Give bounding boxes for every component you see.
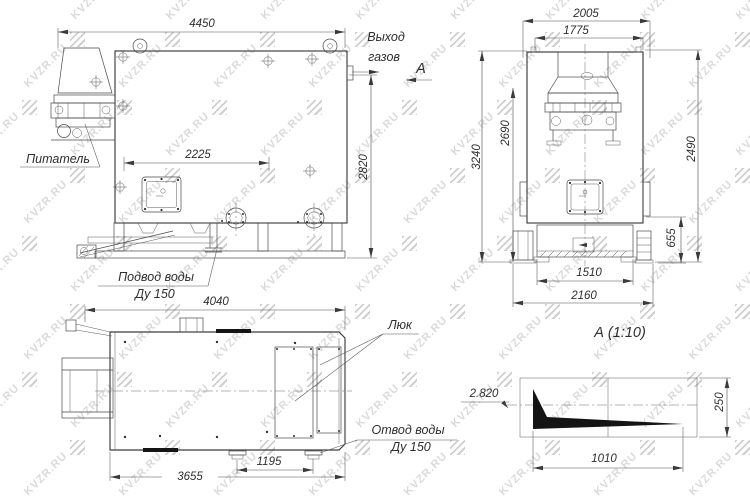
dim-detail-height: 250: [714, 392, 726, 411]
label-gas-outlet-1: Выход: [367, 30, 405, 44]
label-hatch: Люк: [388, 318, 412, 332]
dim-front-base-span-inner: 1510: [576, 267, 602, 279]
label-section-mark: А: [416, 61, 426, 77]
dim-top-body-length: 3655: [177, 471, 203, 483]
dim-front-body-width: 1775: [563, 25, 589, 37]
dim-top-nozzle-span: 1195: [257, 456, 282, 468]
label-gas-outlet-2: газов: [368, 50, 400, 64]
label-water-outlet-2: Ду 150: [391, 440, 431, 454]
dim-top-overall-length: 4040: [203, 296, 229, 308]
dim-detail-level: 2.820: [470, 388, 499, 400]
dim-side-height: 2820: [358, 154, 370, 180]
drawing-canvas: KVZR.RUKVZR.RUKVZR.RUKVZR.RUKVZR.RUKVZR.…: [0, 0, 750, 500]
detail-title: А (1:10): [594, 325, 646, 341]
dim-front-right-height: 2490: [686, 136, 698, 162]
dim-front-base-height: 655: [666, 228, 678, 247]
label-water-outlet-1: Отвод воды: [371, 423, 444, 437]
dim-front-top-width: 2005: [573, 8, 599, 20]
label-water-inlet-2: Ду 150: [135, 287, 175, 301]
dim-front-overall-height: 3240: [471, 144, 483, 170]
dim-side-hatch-span: 2225: [185, 149, 211, 161]
label-water-inlet-1: Подвод воды: [118, 270, 194, 284]
dim-front-left-height: 2690: [500, 120, 512, 146]
labels-layer: 4450 2225 2820 Выход газов А Питатель По…: [0, 0, 750, 500]
label-feeder: Питатель: [26, 152, 90, 166]
dim-front-base-span: 2160: [571, 290, 597, 302]
dim-detail-length: 1010: [591, 453, 617, 465]
dim-side-overall-length: 4450: [189, 18, 215, 30]
